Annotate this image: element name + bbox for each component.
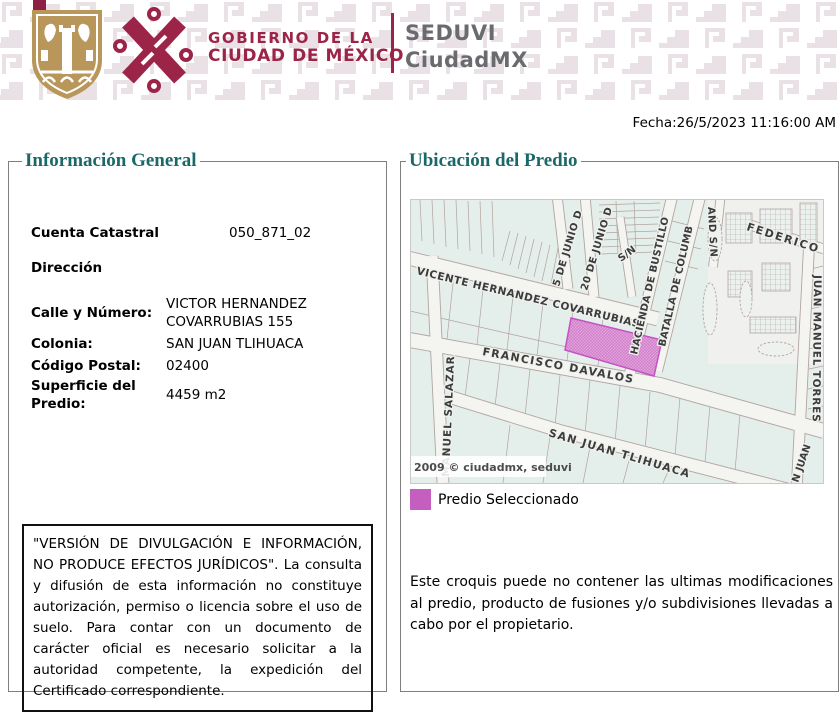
map-panel: Ubicación del Predio bbox=[400, 150, 839, 692]
field-value: 050_871_02 bbox=[166, 224, 376, 242]
government-wordmark: GOBIERNO DE LA CIUDAD DE MÉXICO bbox=[208, 30, 404, 66]
field-label: Calle y Número: bbox=[31, 304, 166, 322]
map-legend: Predio Seleccionado bbox=[410, 489, 579, 510]
map-canvas: VICENTE HERNANDEZ COVARRUBIAS FRANCISCO … bbox=[410, 199, 824, 484]
field-value: 02400 bbox=[166, 357, 376, 375]
map-legend-label: Predio Seleccionado bbox=[438, 492, 579, 508]
field-label: Colonia: bbox=[31, 335, 166, 353]
field-row: Dirección bbox=[31, 259, 376, 277]
date-text: Fecha:26/5/2023 11:16:00 AM bbox=[633, 115, 836, 131]
general-info-fields: Cuenta Catastral 050_871_02 Dirección Ca… bbox=[31, 224, 376, 413]
selected-parcel-swatch bbox=[410, 489, 431, 510]
field-value: 4459 m2 bbox=[166, 386, 376, 404]
seduvi-wordmark: SEDUVI CiudadMX bbox=[405, 20, 528, 74]
field-value: VICTOR HERNANDEZ COVARRUBIAS 155 bbox=[166, 295, 366, 331]
field-label: Dirección bbox=[31, 259, 166, 277]
field-label: Superficie del Predio: bbox=[31, 377, 166, 413]
general-info-title: Información General bbox=[22, 150, 200, 172]
croquis-note: Este croquis puede no contener las ultim… bbox=[410, 572, 833, 637]
field-label: Cuenta Catastral bbox=[31, 224, 166, 242]
field-row: Cuenta Catastral 050_871_02 bbox=[31, 224, 376, 242]
field-row: Colonia: SAN JUAN TLIHUACA bbox=[31, 335, 376, 353]
map-panel-title: Ubicación del Predio bbox=[406, 150, 581, 172]
field-row: Superficie del Predio: 4459 m2 bbox=[31, 377, 376, 413]
seduvi-line2: CiudadMX bbox=[405, 47, 528, 74]
header: GOBIERNO DE LA CIUDAD DE MÉXICO SEDUVI C… bbox=[0, 0, 840, 103]
field-value bbox=[166, 259, 376, 277]
disclaimer-box: "VERSIÓN DE DIVULGACIÓN E INFORMACIÓN, N… bbox=[22, 524, 373, 712]
field-row: Código Postal: 02400 bbox=[31, 357, 376, 375]
page: GOBIERNO DE LA CIUDAD DE MÉXICO SEDUVI C… bbox=[0, 0, 840, 630]
disclaimer-text: "VERSIÓN DE DIVULGACIÓN E INFORMACIÓN, N… bbox=[33, 536, 362, 699]
field-row: Calle y Número: VICTOR HERNANDEZ COVARRU… bbox=[31, 295, 376, 331]
map-container: VICENTE HERNANDEZ COVARRUBIAS FRANCISCO … bbox=[410, 199, 824, 484]
seduvi-line1: SEDUVI bbox=[405, 20, 528, 47]
mexico-city-shield-icon bbox=[28, 8, 106, 102]
cdmx-logo-icon bbox=[112, 6, 196, 94]
general-info-panel: Información General Cuenta Catastral 050… bbox=[8, 150, 387, 692]
street-label-torres: JUAN MANUEL TORRES bbox=[810, 274, 823, 423]
government-wordmark-line1: GOBIERNO DE LA bbox=[208, 30, 404, 47]
map-watermark-text: 2009 © ciudadmx, seduvi bbox=[414, 461, 572, 474]
header-divider bbox=[391, 13, 394, 73]
field-value: SAN JUAN TLIHUACA bbox=[166, 335, 376, 353]
field-label: Código Postal: bbox=[31, 357, 166, 375]
government-wordmark-line2: CIUDAD DE MÉXICO bbox=[208, 47, 404, 66]
